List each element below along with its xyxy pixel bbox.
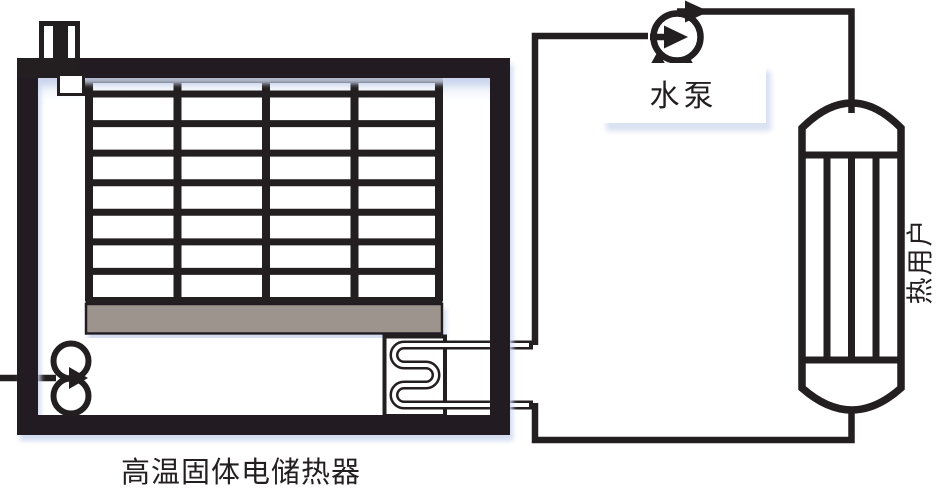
heat-exchanger xyxy=(385,337,534,417)
diagram-canvas: 水泵 热用户 高温固体电储热器 xyxy=(0,0,945,495)
heat-user-vessel xyxy=(802,100,901,410)
heat-user-label: 热用户 xyxy=(899,218,938,305)
pump-outlet-arrow xyxy=(685,1,709,23)
heat-storage-system-diagram xyxy=(0,0,945,495)
base-plate xyxy=(86,304,442,334)
brick-grid xyxy=(85,78,443,302)
circulation-fan-icon xyxy=(54,344,89,414)
terminal-inner-box xyxy=(59,75,84,95)
pump-label-box: 水泵 xyxy=(601,63,766,123)
device-title: 高温固体电储热器 xyxy=(81,449,401,491)
return-pipe xyxy=(535,398,852,440)
pump-label: 水泵 xyxy=(650,71,718,115)
electrode-icon xyxy=(53,26,68,74)
